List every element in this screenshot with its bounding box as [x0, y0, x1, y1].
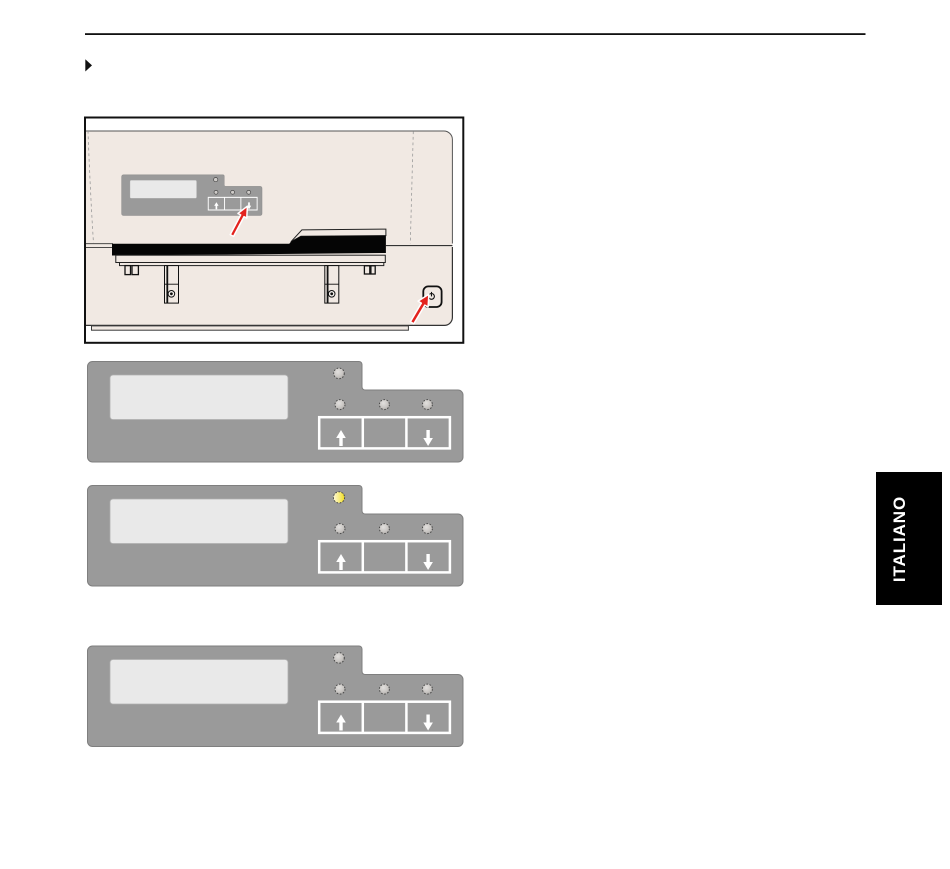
- svg-text:ITALIANO: ITALIANO: [890, 496, 909, 582]
